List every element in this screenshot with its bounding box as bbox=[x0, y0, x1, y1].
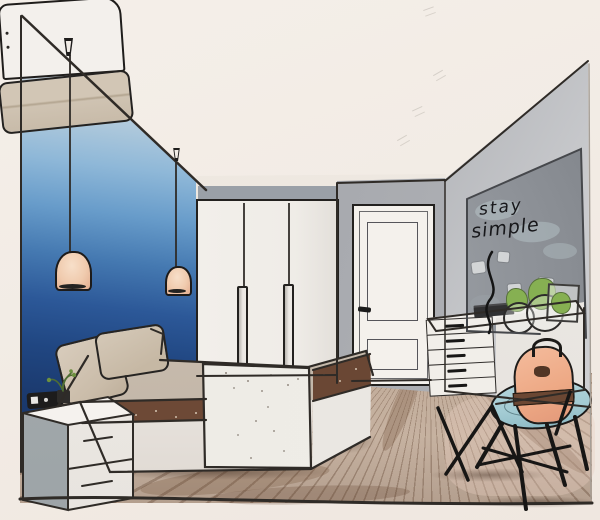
headboard-screw bbox=[5, 32, 8, 35]
drawer bbox=[429, 377, 497, 397]
backpack-handle bbox=[532, 338, 562, 357]
polaroid-photo bbox=[498, 252, 510, 263]
plant-pot bbox=[57, 390, 70, 403]
headboard-screw bbox=[6, 46, 9, 49]
bedroom-sketch: stay simple bbox=[0, 0, 600, 520]
dresser-drawers bbox=[426, 318, 497, 407]
drawer-handle bbox=[446, 339, 465, 343]
plant-leaves bbox=[551, 292, 571, 314]
door-panel bbox=[367, 222, 418, 321]
lamp-underside bbox=[59, 284, 86, 289]
headboard bbox=[0, 0, 126, 80]
pencil-mark bbox=[423, 6, 436, 16]
ink-speckles bbox=[225, 372, 227, 374]
stool-shadow bbox=[478, 496, 598, 508]
lamp-underside bbox=[168, 289, 186, 293]
pencil-mark bbox=[397, 135, 410, 147]
dresser-shadow bbox=[428, 468, 548, 482]
drawer-handle bbox=[447, 354, 466, 358]
polaroid-photo bbox=[471, 261, 485, 274]
door-panel bbox=[367, 339, 418, 370]
drawer-handle bbox=[448, 384, 467, 388]
radio-dial bbox=[44, 398, 48, 402]
pencil-mark bbox=[412, 106, 425, 117]
wardrobe-handle bbox=[283, 284, 294, 379]
radio-speaker bbox=[31, 396, 38, 403]
drawer-handle bbox=[447, 369, 466, 373]
backpack-pocket bbox=[534, 366, 550, 377]
wardrobe bbox=[196, 199, 339, 380]
pencil-mark bbox=[433, 70, 446, 82]
watercolor-blob bbox=[543, 243, 577, 259]
drawer-handle bbox=[445, 324, 464, 328]
